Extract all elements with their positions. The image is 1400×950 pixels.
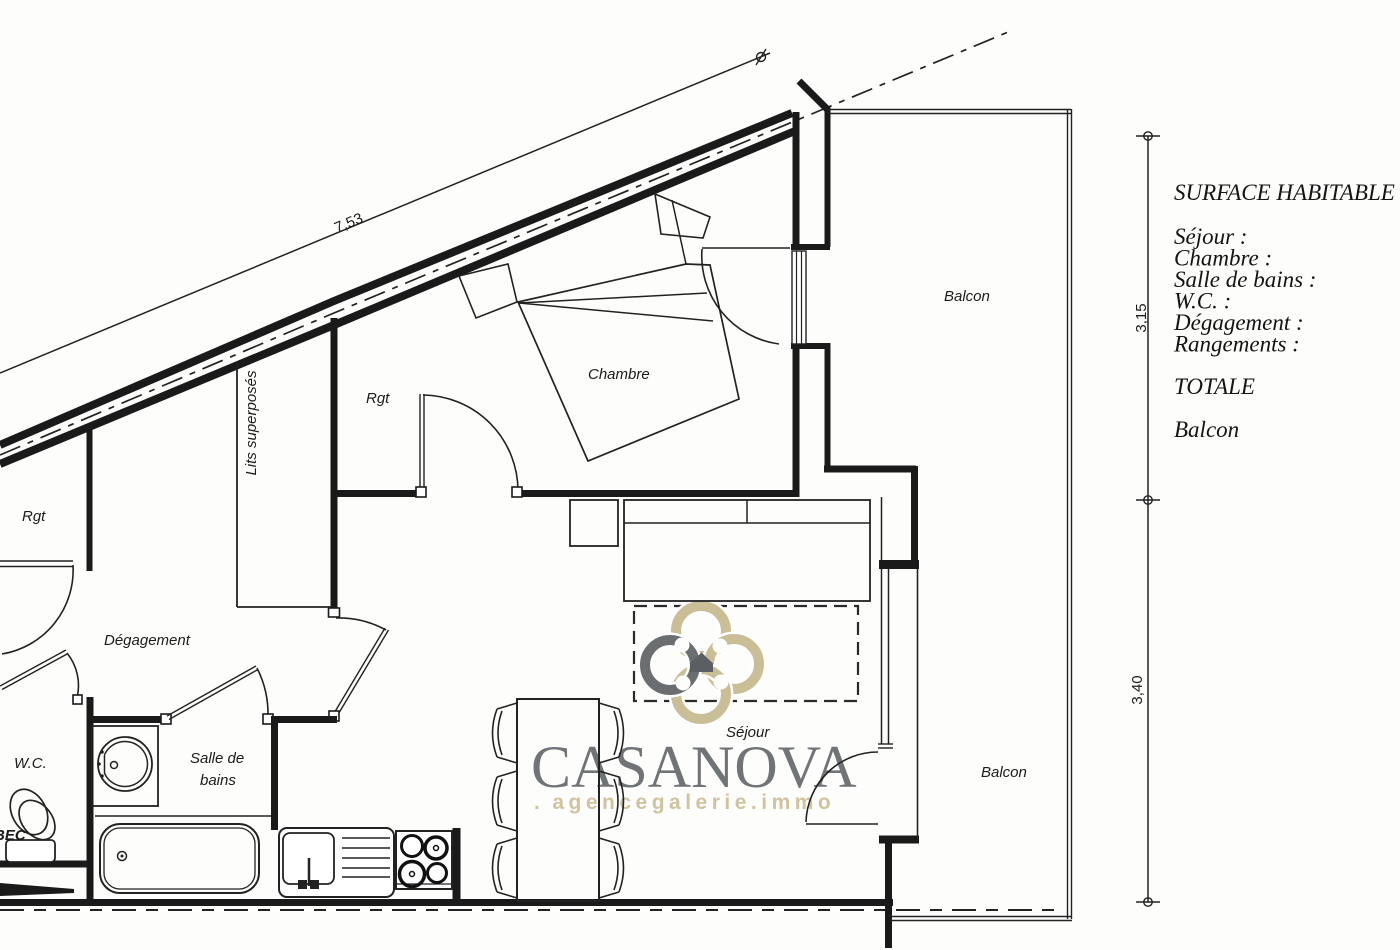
svg-text:Balcon: Balcon [1174, 417, 1239, 442]
svg-text:SURFACE HABITABLE :: SURFACE HABITABLE : [1174, 180, 1400, 205]
svg-text:Balcon: Balcon [944, 288, 990, 305]
svg-text:.agencegalerie.immo: .agencegalerie.immo [534, 791, 835, 814]
svg-text:BEC: BEC [0, 827, 27, 844]
svg-text:Rgt: Rgt [22, 508, 46, 525]
svg-text:Dégagement: Dégagement [104, 632, 191, 649]
svg-text:Chambre: Chambre [588, 366, 650, 383]
svg-text:Rgt: Rgt [366, 390, 390, 407]
svg-text:TOTALE: TOTALE [1174, 374, 1255, 399]
svg-text:3,40: 3,40 [1129, 675, 1146, 704]
svg-text:Balcon: Balcon [981, 764, 1027, 781]
svg-text:bains: bains [200, 772, 236, 789]
svg-text:W.C.: W.C. [14, 755, 47, 772]
svg-text:Lits superposés: Lits superposés [243, 370, 260, 476]
svg-text:3,15: 3,15 [1133, 303, 1150, 332]
svg-text:Salle de: Salle de [190, 750, 244, 767]
svg-text:Séjour: Séjour [726, 724, 770, 741]
svg-text:Rangements :: Rangements : [1173, 332, 1300, 357]
